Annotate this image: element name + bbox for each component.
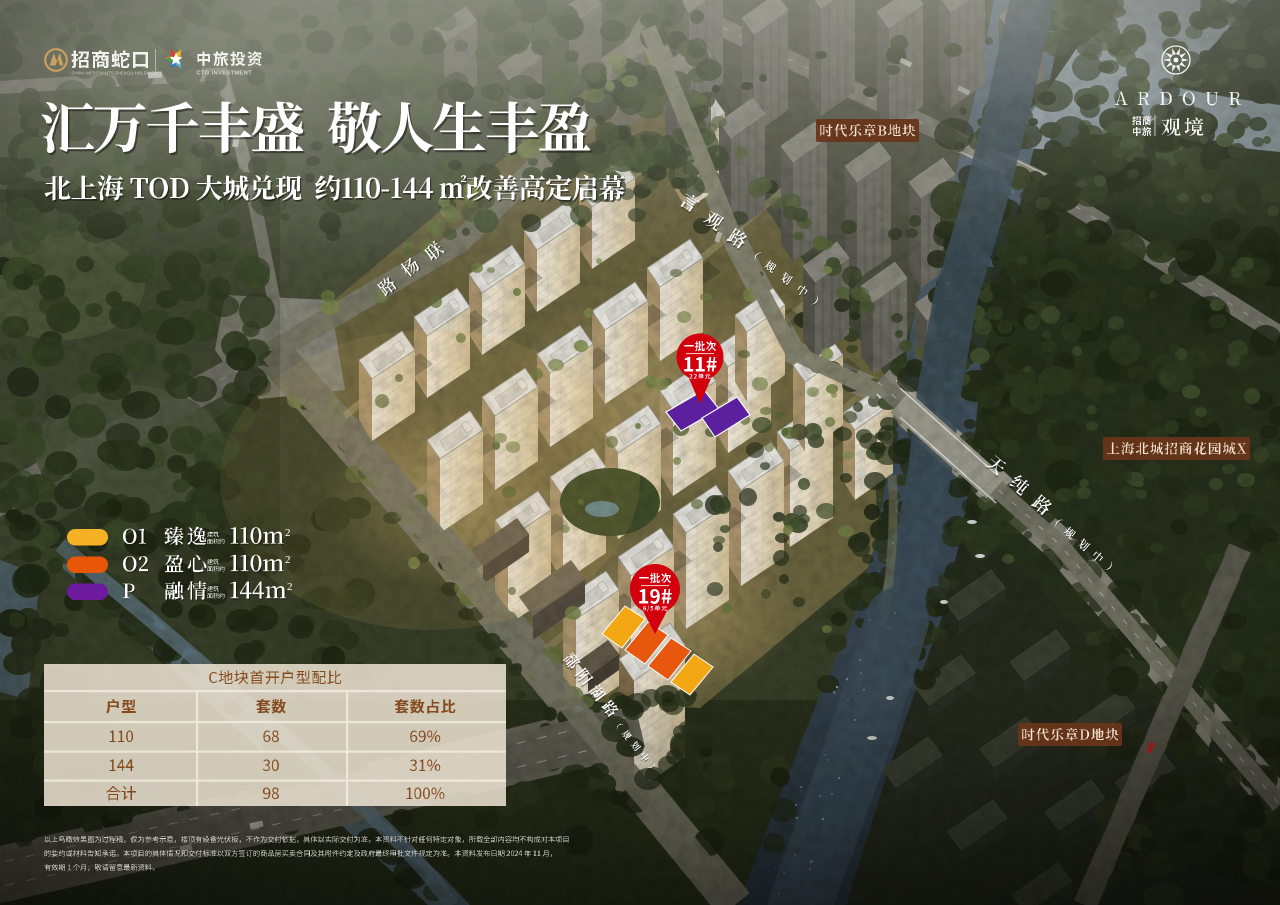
svg-text:2: 2 <box>287 581 293 593</box>
svg-text:CHINA MERCHANTS SHEKOU HOLDING: CHINA MERCHANTS SHEKOU HOLDINGS <box>72 71 158 76</box>
svg-text:CTG INVESTMENT: CTG INVESTMENT <box>197 71 253 77</box>
svg-text:2: 2 <box>285 527 291 539</box>
svg-text:2: 2 <box>285 554 291 566</box>
